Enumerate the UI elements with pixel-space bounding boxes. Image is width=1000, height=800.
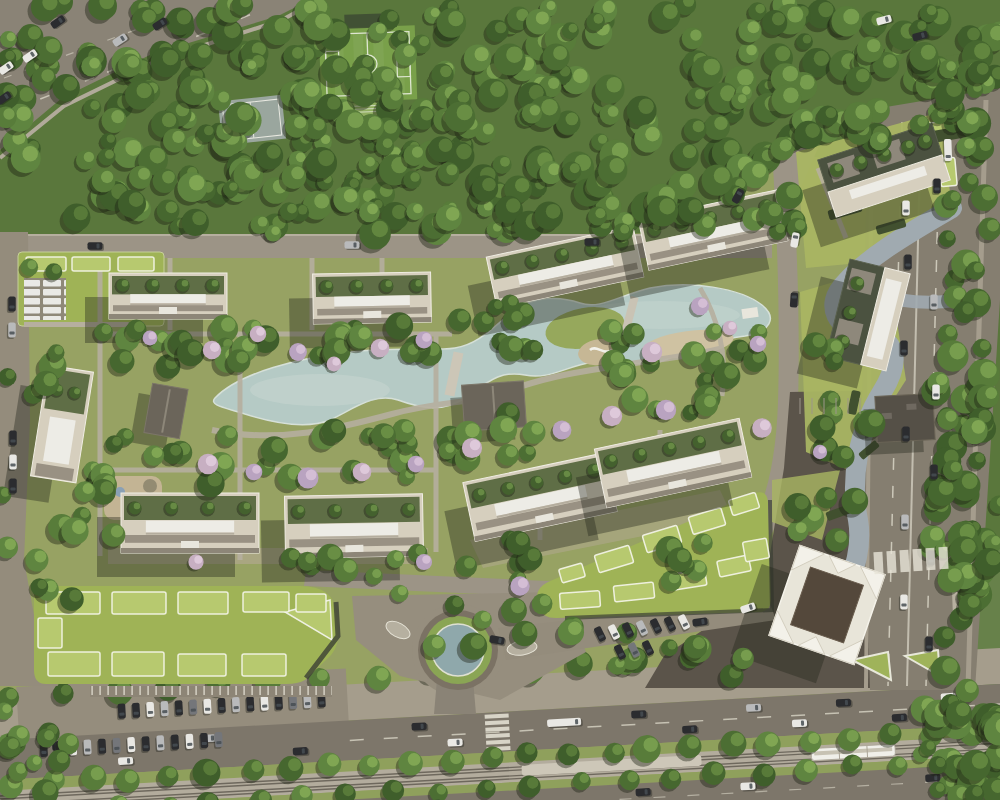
car: [631, 710, 648, 720]
car: [746, 704, 763, 714]
lawn-patch: [72, 257, 110, 271]
car: [836, 699, 853, 709]
car: [901, 201, 910, 218]
car: [8, 455, 17, 472]
car: [82, 739, 92, 756]
car: [173, 700, 183, 717]
lawn-patch: [178, 654, 226, 676]
pergola-canopy: [90, 686, 332, 697]
car: [97, 739, 107, 756]
car: [682, 725, 699, 735]
car: [943, 139, 953, 163]
car: [931, 385, 940, 402]
car: [899, 341, 908, 358]
solar-panel-rows: [24, 278, 66, 320]
car: [118, 757, 135, 767]
lawn-patch: [742, 538, 769, 562]
car: [231, 697, 241, 714]
car: [273, 695, 283, 712]
car: [929, 295, 938, 312]
lawn-patch: [242, 654, 286, 676]
car: [202, 699, 212, 716]
car: [903, 255, 912, 272]
car: [213, 732, 223, 749]
lawn-patch: [559, 591, 600, 610]
car: [901, 427, 910, 444]
car: [792, 719, 809, 729]
car: [216, 698, 226, 715]
car: [259, 695, 269, 712]
lawn-patch: [38, 618, 62, 648]
car: [740, 782, 757, 792]
car: [899, 595, 908, 612]
car: [140, 736, 150, 753]
car: [88, 242, 105, 251]
car: [245, 696, 255, 713]
car: [155, 735, 165, 752]
car: [293, 747, 310, 757]
car: [184, 734, 194, 751]
lawn-patch: [178, 592, 228, 614]
car: [8, 431, 17, 448]
lawn-patch: [118, 257, 154, 271]
lawn-patch: [48, 652, 100, 676]
car: [932, 179, 941, 196]
lawn-patch: [243, 592, 289, 612]
pond-shallow-west: [250, 374, 390, 406]
car: [345, 241, 362, 250]
car: [199, 733, 209, 750]
car: [8, 479, 17, 496]
car: [145, 702, 155, 719]
car: [126, 737, 136, 754]
car: [170, 734, 180, 751]
car: [447, 738, 464, 748]
car: [900, 515, 909, 532]
lawn-patch: [112, 592, 166, 614]
masterplan-svg: [0, 0, 1000, 800]
car: [111, 738, 121, 755]
lawn-patch: [296, 594, 326, 612]
lawn-patch: [613, 582, 654, 602]
car: [7, 323, 16, 340]
car: [7, 297, 16, 314]
lawn-patch: [112, 652, 164, 676]
car: [892, 713, 909, 723]
car: [790, 291, 800, 308]
aerial-render: Aerial masterplan rendering: residential…: [0, 0, 1000, 800]
car: [929, 465, 938, 482]
car: [116, 703, 126, 720]
car: [411, 722, 428, 732]
car: [585, 238, 602, 247]
car: [635, 788, 652, 798]
car: [159, 701, 169, 718]
car: [188, 699, 198, 716]
car: [924, 637, 933, 654]
car: [131, 703, 141, 720]
